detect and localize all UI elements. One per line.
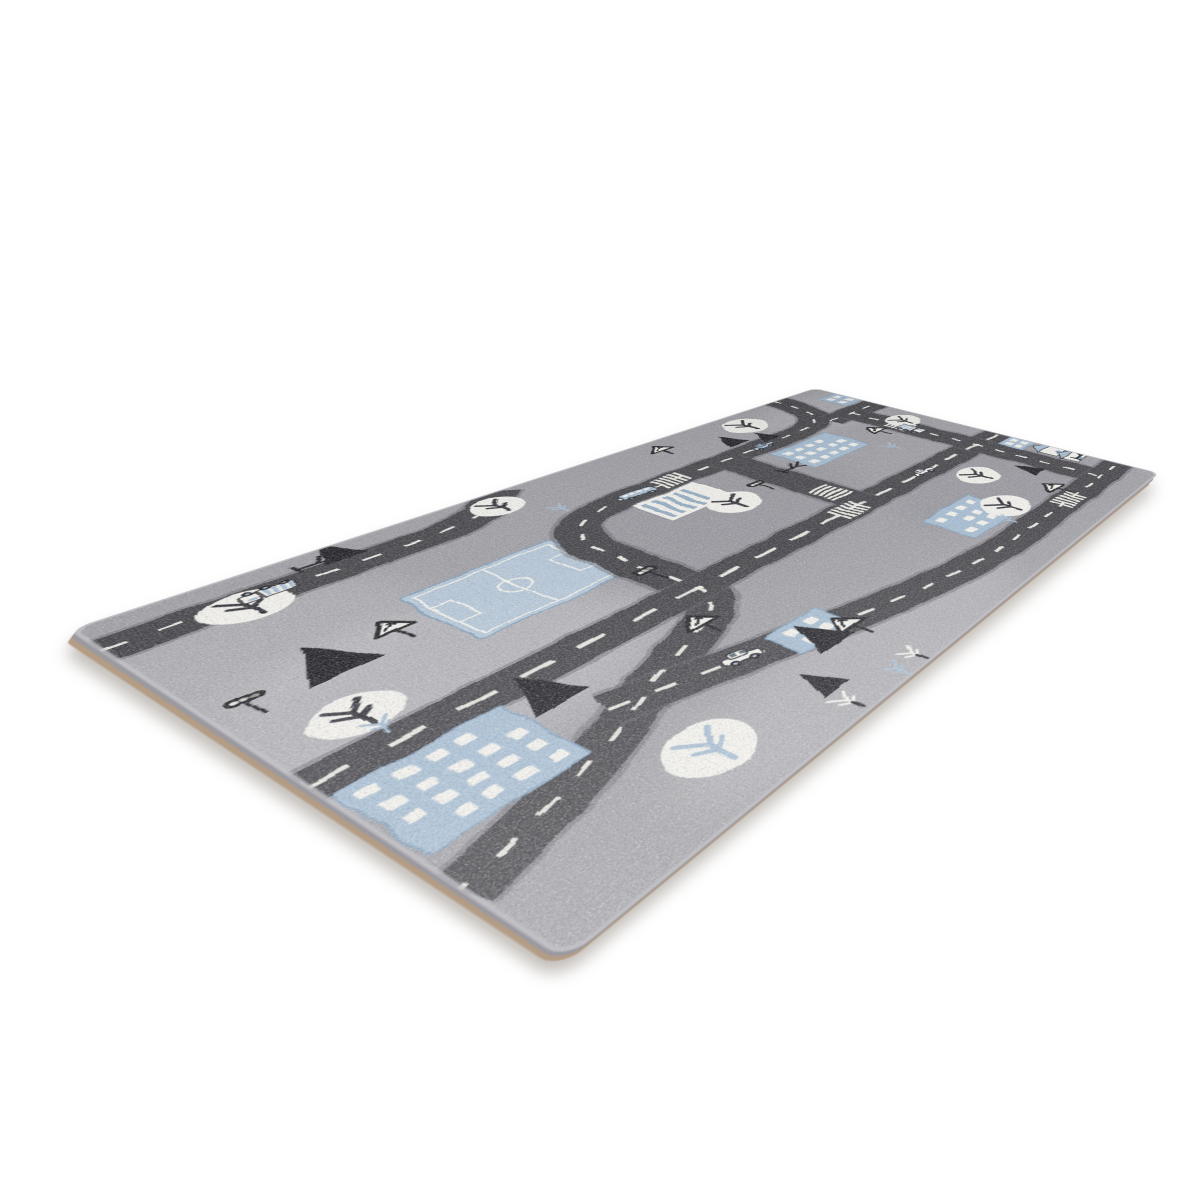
product-photo-canvas xyxy=(0,0,1200,1200)
lighting-sheen xyxy=(67,388,1160,962)
rug-shadow-wrap xyxy=(0,0,1200,1200)
rug-3d-object xyxy=(67,388,1160,962)
rug-surface xyxy=(67,388,1160,962)
play-rug-design xyxy=(67,388,1160,962)
